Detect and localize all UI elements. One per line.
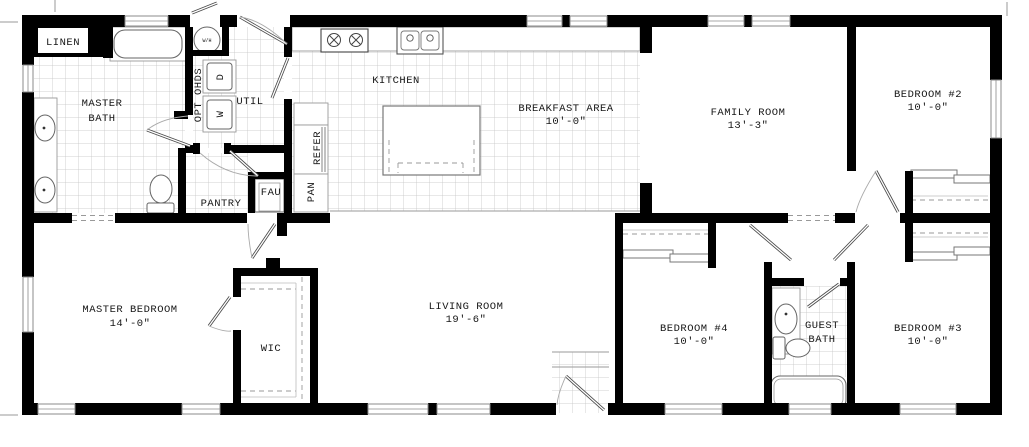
pantry-label: PANTRY: [201, 198, 242, 210]
dryer-label: D: [215, 74, 227, 81]
master-bath-label2: BATH: [88, 113, 115, 125]
bedroom4-dim: 10'-0": [674, 336, 715, 348]
master-bedroom-dim: 14'-0": [110, 318, 151, 330]
bedroom3-dim: 10'-0": [908, 336, 949, 348]
family-room-dim: 13'-3": [728, 120, 769, 132]
door-master-bedroom: [248, 224, 275, 258]
guest-bath-label: GUEST: [805, 320, 839, 332]
living-room-label: LIVING ROOM: [429, 301, 504, 313]
family-room-label: FAMILY ROOM: [711, 107, 786, 119]
water-heater-label: W/H: [202, 38, 211, 44]
kitchen-label: KITCHEN: [372, 75, 420, 87]
door-bedroom2: [856, 171, 898, 212]
bedroom3-closet: [911, 233, 990, 260]
kitchen-island: [383, 106, 480, 175]
opt-ohds-label: OPT OHDS: [193, 68, 205, 122]
master-bath-label: MASTER: [82, 98, 123, 110]
guest-bath-label2: BATH: [808, 334, 835, 346]
kitchen-sink: [397, 27, 443, 54]
door-bedroom4: [750, 225, 791, 260]
guest-toilet: [773, 337, 810, 359]
breakfast-label: BREAKFAST AREA: [518, 103, 613, 115]
breakfast-dim: 10'-0": [546, 116, 587, 128]
double-vanity: [34, 98, 57, 212]
bedroom2-label: BEDROOM #2: [894, 89, 962, 101]
fau-label: FAU: [261, 187, 281, 199]
stove: [321, 29, 368, 52]
door-wic: [209, 297, 231, 331]
linen-label: LINEN: [46, 37, 80, 49]
bathtub: [110, 27, 186, 61]
bedroom2-closet: [911, 170, 990, 200]
door-bedroom3: [834, 225, 868, 260]
wic-shelves: [241, 277, 302, 402]
door-water-heater: [192, 3, 217, 13]
floor-plan: LINEN MASTER BATH UTIL OPT OHDS D W W/H …: [0, 0, 1029, 447]
bedroom4-label: BEDROOM #4: [660, 323, 728, 335]
bedroom3-label: BEDROOM #3: [894, 323, 962, 335]
living-room-dim: 19'-6": [446, 314, 487, 326]
floor-plan-drawing: LINEN MASTER BATH UTIL OPT OHDS D W W/H …: [0, 0, 1029, 447]
master-bedroom-label: MASTER BEDROOM: [82, 304, 177, 316]
pan-label: PAN: [306, 182, 318, 202]
kitchen-cabinet: [294, 103, 328, 125]
util-label: UTIL: [236, 96, 263, 108]
wic-label: WIC: [261, 343, 281, 355]
washer-label: W: [215, 110, 227, 117]
bedroom2-dim: 10'-0": [908, 102, 949, 114]
refer-label: REFER: [312, 131, 324, 165]
bedroom4-closet: [623, 230, 710, 262]
